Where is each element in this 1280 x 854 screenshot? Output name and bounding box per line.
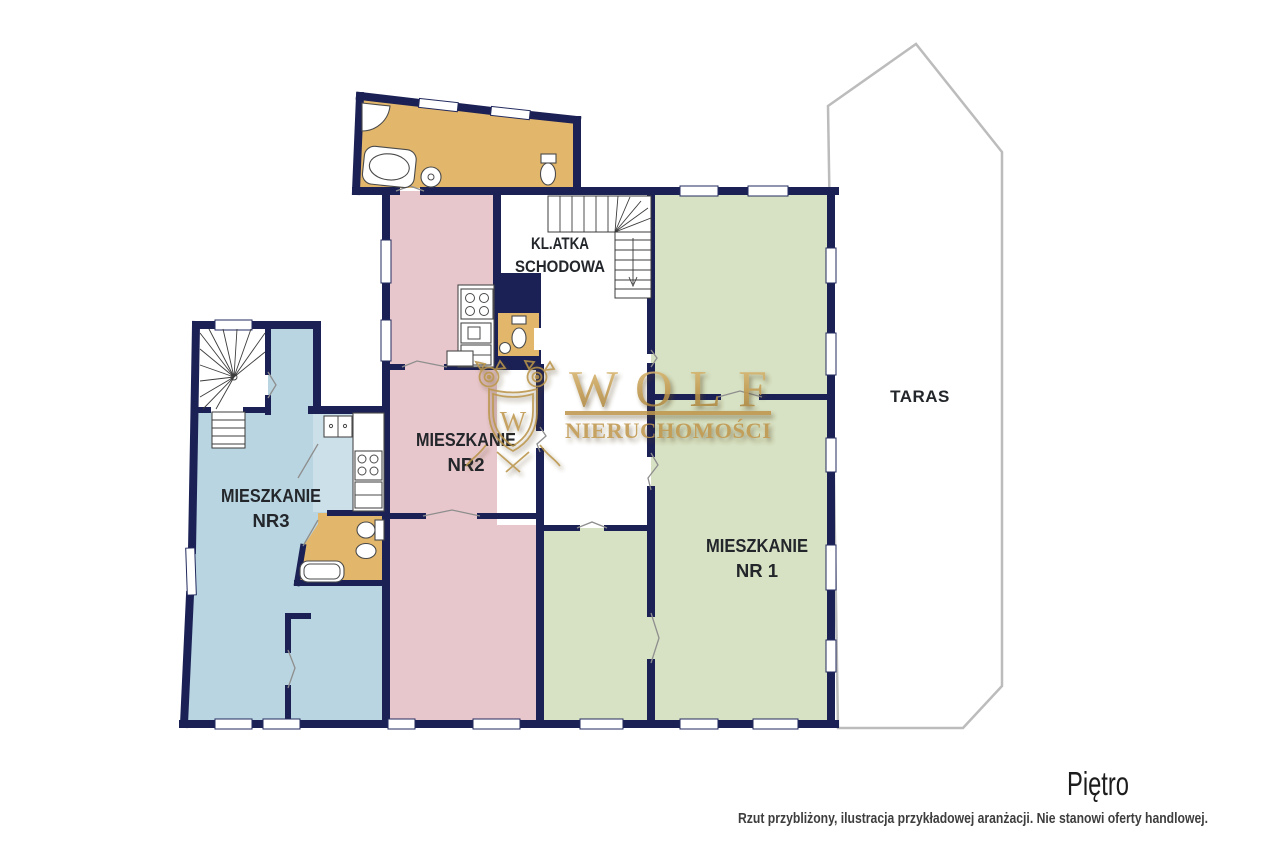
apartment-nr1-label-line2: NR 1 xyxy=(736,560,778,581)
toilet-icon xyxy=(357,522,375,538)
straight-stairs xyxy=(212,412,245,448)
toilet-icon xyxy=(541,163,556,185)
window xyxy=(826,545,836,590)
window xyxy=(215,719,252,729)
terrace-label: TARAS xyxy=(890,387,950,406)
stove-icon xyxy=(461,289,493,319)
disclaimer-text: Rzut przybliżony, ilustracja przykładowe… xyxy=(738,811,1208,827)
toilet-tank-icon xyxy=(541,154,556,163)
wc-block xyxy=(493,273,542,368)
window xyxy=(580,719,623,729)
crest-monogram: W xyxy=(500,407,527,438)
apartment-nr2-label-line2: NR2 xyxy=(447,454,484,475)
staircase-label-line2: SCHODOWA xyxy=(515,258,605,276)
window xyxy=(473,719,520,729)
window xyxy=(753,719,798,729)
floor-plan-page: KL.ATKA SCHODOWA MIESZKANIE NR2 MIESZKAN… xyxy=(0,0,1280,854)
window xyxy=(826,640,836,672)
brand-underline xyxy=(565,411,771,415)
window xyxy=(388,719,415,729)
brand-wordmark: WOLF xyxy=(569,361,767,418)
staircase-label-line1: KL.ATKA xyxy=(531,235,589,253)
apartment-nr3-label-line1: MIESZKANIE xyxy=(221,485,321,506)
window xyxy=(263,719,300,729)
toilet-icon xyxy=(512,328,526,348)
toilet-tank-icon xyxy=(512,316,526,324)
window xyxy=(215,320,252,330)
wc-door-gap xyxy=(534,328,542,350)
cabinet-icon xyxy=(461,323,491,343)
apartment-nr1-area xyxy=(651,194,831,724)
window xyxy=(826,333,836,375)
stove-icon xyxy=(355,451,382,480)
apartment-nr1-lower-room xyxy=(540,528,651,724)
window xyxy=(748,186,788,196)
terrace-area xyxy=(828,44,1002,728)
toilet-tank-icon xyxy=(375,520,384,540)
apartment-nr3-label-line2: NR3 xyxy=(252,510,289,531)
apartment-nr1-label-line1: MIESZKANIE xyxy=(706,535,808,556)
window xyxy=(381,240,391,283)
window xyxy=(680,186,718,196)
sink-icon xyxy=(500,343,511,354)
window xyxy=(680,719,718,729)
sink-icon xyxy=(356,544,376,559)
terrace-outline xyxy=(828,44,1002,728)
sink-icon xyxy=(421,167,441,187)
footer: Piętro Rzut przybliżony, ilustracja przy… xyxy=(738,765,1208,827)
cabinet-icon xyxy=(447,351,473,366)
brand-subtitle: NIERUCHOMOŚCI xyxy=(565,417,771,443)
window xyxy=(826,438,836,472)
window xyxy=(381,320,391,361)
window xyxy=(826,248,836,283)
floor-plan-svg: KL.ATKA SCHODOWA MIESZKANIE NR2 MIESZKAN… xyxy=(0,0,1280,854)
window xyxy=(186,548,197,595)
floor-label: Piętro xyxy=(1067,765,1129,802)
